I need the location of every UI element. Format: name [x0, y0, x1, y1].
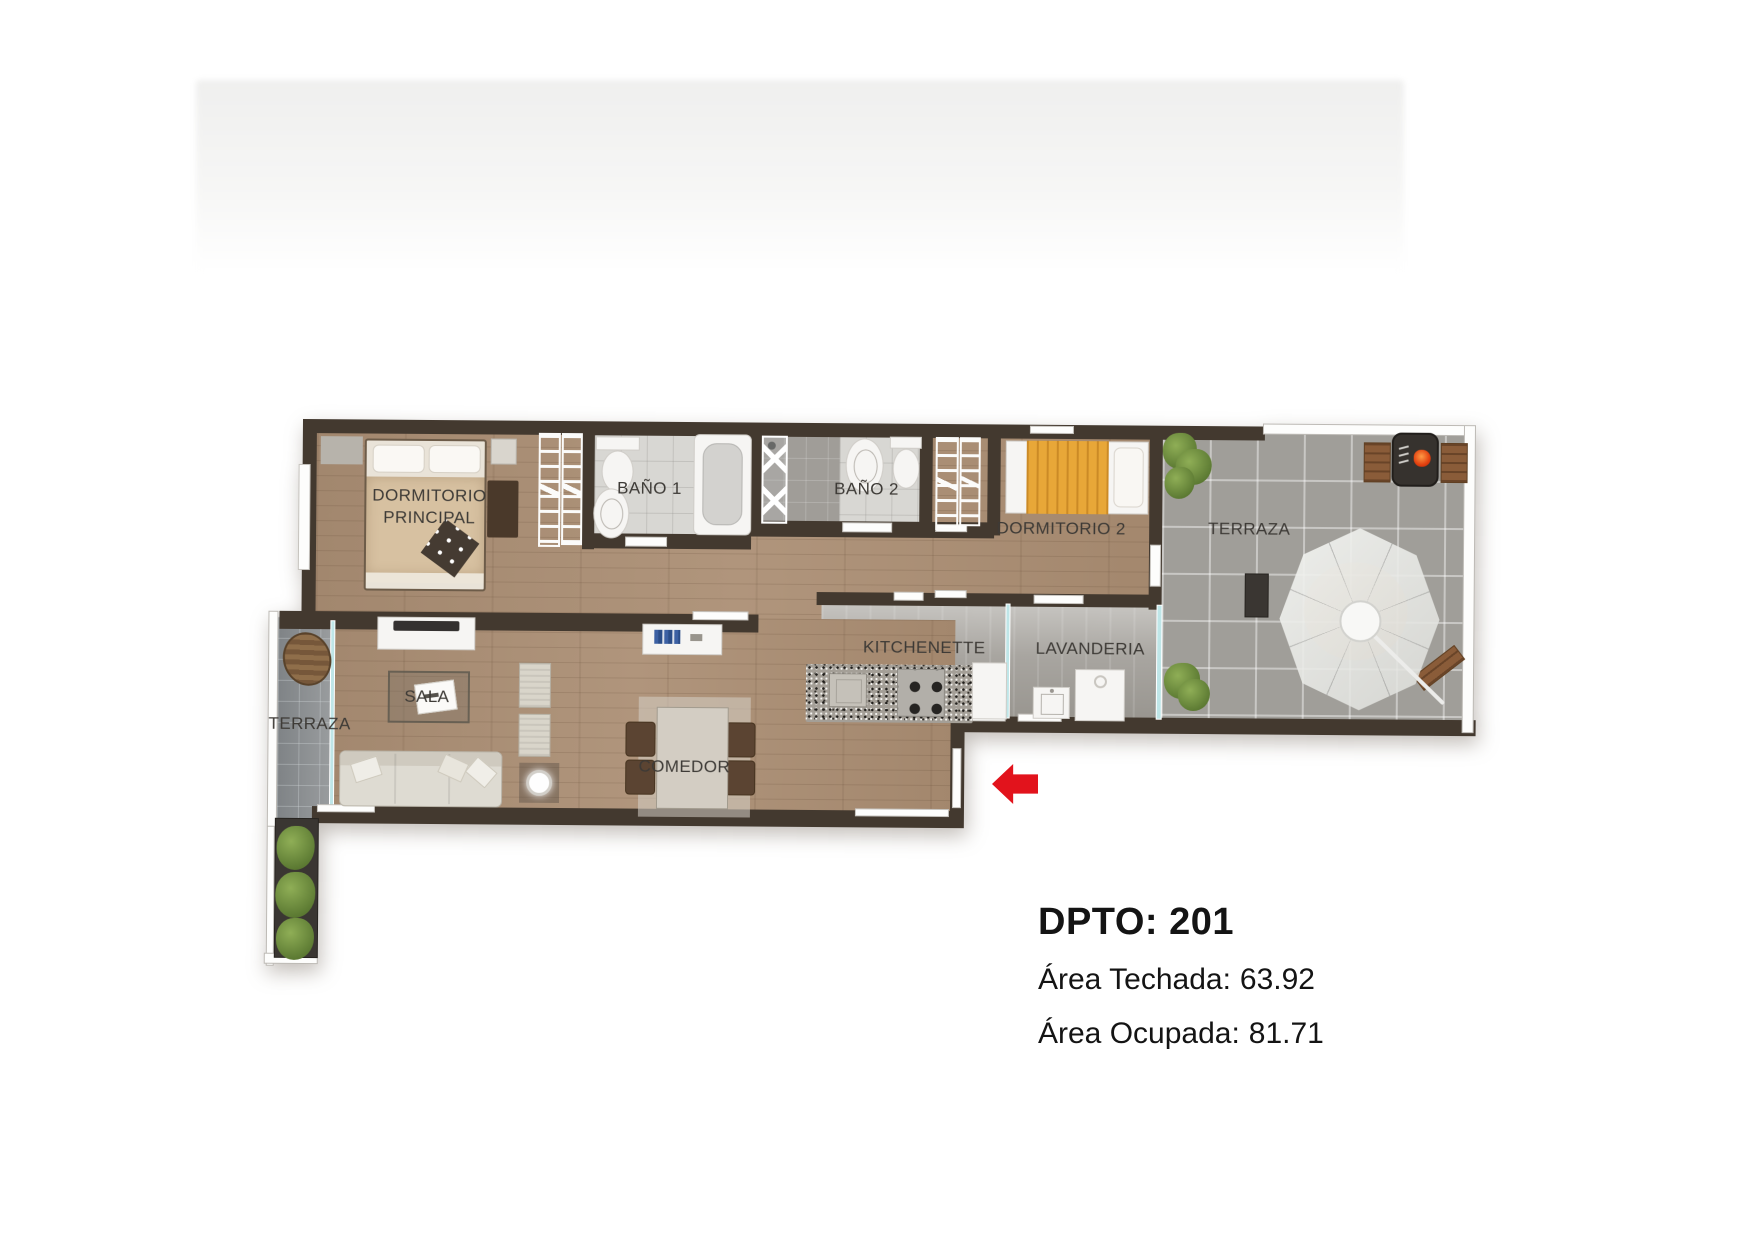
window-sill-dining — [855, 808, 949, 817]
window-sill-top — [1030, 426, 1074, 434]
closet-rack — [935, 437, 959, 530]
floor-lamp — [526, 770, 552, 796]
umbrella-hub — [1339, 600, 1381, 642]
bbq-bench — [1364, 442, 1391, 482]
entrance-door-sill — [952, 748, 961, 808]
bed-fold — [366, 572, 484, 583]
flame-icon — [1414, 450, 1431, 467]
area-techada-value: 63.92 — [1240, 963, 1315, 996]
decor-books — [654, 630, 680, 644]
shower-glass-door — [761, 436, 788, 524]
sofa — [339, 750, 502, 807]
door-sill — [625, 537, 667, 547]
tv — [393, 621, 459, 632]
door-sill — [935, 590, 967, 598]
closet-rack — [561, 433, 583, 545]
unit-title: DPTO: 201 — [1038, 900, 1518, 944]
planter-small — [1244, 573, 1268, 617]
dining-chair — [625, 722, 655, 757]
laundry-sink — [1033, 687, 1070, 719]
sink-basin — [1041, 694, 1064, 715]
area-techada-line: Área Techada:63.92 — [1038, 962, 1518, 998]
grill-line — [1399, 445, 1409, 449]
door-sill — [1034, 595, 1084, 604]
room-label-dormitorio-principal: DORMITORIO PRINCIPAL — [354, 484, 504, 529]
door-sill — [894, 592, 924, 601]
kitchen-sink — [829, 673, 867, 707]
pillow — [429, 445, 481, 473]
door-sill — [692, 611, 748, 620]
area-ocupada-label: Área Ocupada: — [1038, 1017, 1240, 1050]
room-label-comedor: COMEDOR — [638, 756, 730, 779]
wall-kitchen-top — [817, 592, 1162, 608]
toilet-tank — [596, 436, 640, 450]
bed2-blanket — [1026, 441, 1109, 515]
sink-basin — [600, 498, 623, 529]
room-label-bano-1: BAÑO 1 — [617, 477, 682, 500]
parapet-terrace-top — [1263, 424, 1475, 437]
washer — [1075, 669, 1125, 721]
glass-laundry-terrace — [1156, 605, 1163, 720]
faucet — [1050, 689, 1054, 693]
wall-bath2-closet2 — [919, 436, 933, 532]
wall-closet-bath1 — [582, 433, 595, 549]
bathtub — [693, 434, 752, 535]
room-label-kitchenette: KITCHENETTE — [863, 636, 986, 659]
bedroom-rug — [321, 436, 363, 464]
fridge — [972, 662, 1007, 719]
door-sill — [842, 522, 892, 532]
grill-line — [1399, 459, 1409, 463]
room-label-lavanderia: LAVANDERIA — [1036, 638, 1145, 661]
room-label-dormitorio-2: DORMITORIO 2 — [996, 517, 1125, 540]
grill-line — [1399, 452, 1409, 456]
pillow — [373, 445, 425, 473]
room-label-terraza-right: TERRAZA — [1208, 518, 1290, 541]
stove — [897, 669, 945, 717]
bbq-grill-icon — [1392, 433, 1439, 487]
room-label-sala: SALA — [404, 686, 449, 708]
armchair — [518, 714, 550, 757]
window-bedroom2 — [1150, 545, 1161, 587]
floor-plan: DORMITORIO PRINCIPAL BAÑO 1 BAÑO 2 DORMI… — [0, 0, 1754, 1240]
armchair — [519, 663, 551, 708]
area-ocupada-line: Área Ocupada:81.71 — [1038, 1016, 1518, 1052]
bathtub-basin — [702, 443, 743, 525]
nightstand — [491, 438, 517, 464]
sofa-seam — [394, 754, 396, 804]
unit-info-block: DPTO: 201 Área Techada:63.92 Área Ocupad… — [1038, 900, 1518, 1052]
room-label-terraza-left: TERRAZA — [268, 713, 350, 736]
pillow — [1113, 447, 1143, 507]
toilet-tank — [890, 437, 922, 449]
page-canvas: DORMITORIO PRINCIPAL BAÑO 1 BAÑO 2 DORMI… — [0, 0, 1754, 1240]
closet-rack — [538, 433, 561, 547]
area-techada-label: Área Techada: — [1038, 963, 1231, 996]
sink-basin — [836, 679, 862, 703]
area-ocupada-value: 81.71 — [1249, 1017, 1324, 1050]
dining-chair — [725, 722, 755, 757]
window-main-bedroom — [298, 464, 311, 570]
closet-rack — [959, 437, 981, 526]
bbq-bench — [1441, 443, 1468, 483]
washer-knob — [1094, 675, 1107, 688]
room-label-bano-2: BAÑO 2 — [834, 478, 899, 501]
decor-item — [690, 634, 702, 641]
